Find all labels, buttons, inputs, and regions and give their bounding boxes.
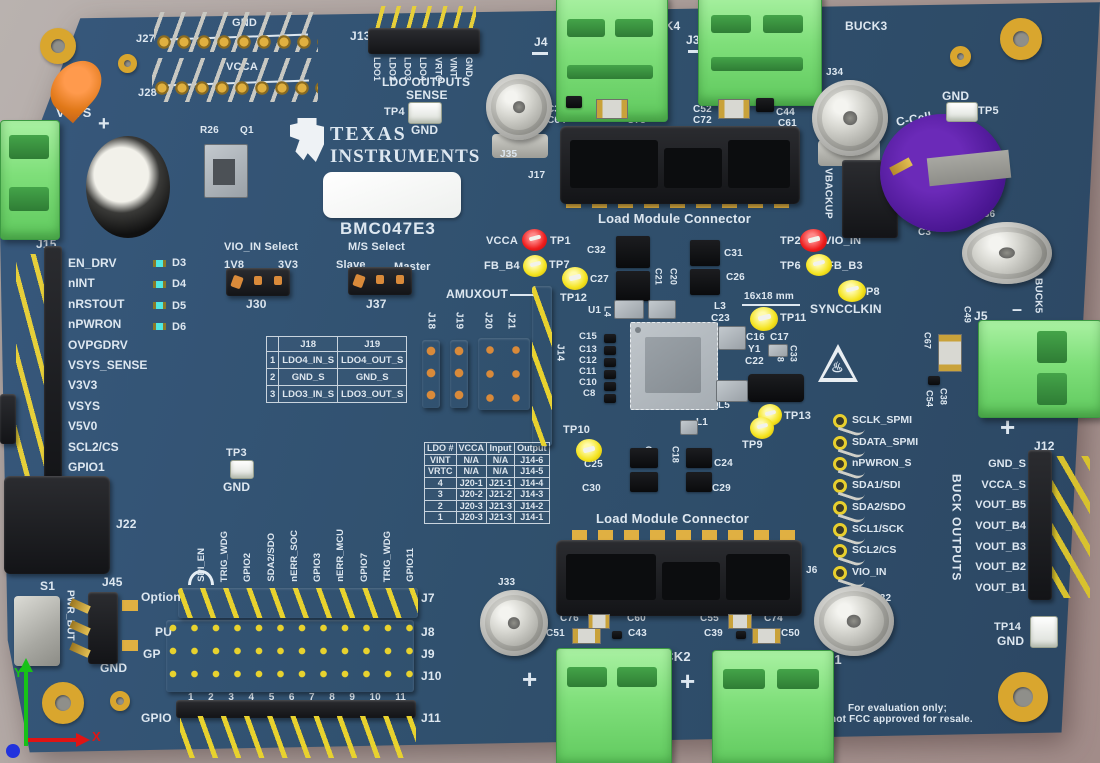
label-sticker (323, 172, 461, 218)
buck2-terminal (556, 648, 672, 763)
mounting-hole (40, 28, 76, 64)
vsys-terminal (0, 120, 60, 240)
cap-small (928, 376, 940, 385)
j13-header (368, 28, 480, 54)
j12-net-label: VOUT_B4 (975, 520, 1026, 532)
l3-designator: L3 (714, 302, 726, 313)
table-cell: 1 (267, 352, 279, 369)
mounting-hole (950, 46, 971, 67)
table-cell: 4 (425, 477, 457, 489)
table-row: 3LDO3_IN_SLDO3_OUT_S (267, 386, 407, 403)
j12-net-label: VOUT_B1 (975, 582, 1026, 594)
c10-designator: C10 (579, 378, 597, 388)
tp9-testpoint (750, 417, 774, 439)
table-cell: LDO3_OUT_S (338, 386, 407, 403)
j6-designator: J6 (806, 566, 818, 577)
gpio-net-label: nERR_SOC (289, 530, 300, 582)
tp14-designator: TP14 (994, 622, 1021, 634)
j9-designator: J9 (421, 648, 435, 661)
j15-header (44, 246, 62, 486)
c27-designator: C27 (590, 275, 609, 286)
tp14-net: GND (997, 635, 1024, 648)
u1-designator: U1 (588, 306, 601, 317)
cap-small (612, 631, 622, 639)
l4-designator: L4 (602, 306, 611, 317)
edge-connector (0, 394, 16, 444)
j45-pad (122, 640, 138, 651)
j15-labels: EN_DRVnINTnRSTOUTnPWRONOVPGDRVVSYS_SENSE… (68, 256, 147, 474)
tp10-designator: TP10 (563, 425, 590, 437)
table-cell: 1 (425, 512, 457, 524)
table-cell: J20-3 (456, 500, 487, 512)
j36-coax (962, 222, 1052, 284)
j12-pins (1050, 456, 1090, 598)
j37-designator: J37 (366, 298, 387, 311)
y-axis-arrow (24, 670, 28, 746)
j18-header (422, 340, 440, 408)
cap-small (736, 631, 746, 639)
table-row: 2GND_SGND_S (267, 369, 407, 386)
j15-net-label: V3V3 (68, 378, 147, 392)
y1-crystal (768, 344, 788, 357)
hot-surface-warning: ♨ (818, 344, 858, 382)
c24-designator: C24 (714, 459, 733, 470)
table-row: 2J20-3J21-3J14-2 (425, 500, 550, 512)
tp1-designator: TP1 (550, 236, 571, 248)
tp2-testpoint (800, 229, 827, 252)
c8-designator: C8 (583, 389, 596, 399)
j8-j10-header-block (166, 620, 414, 692)
eval-note-line2: not FCC approved for resale. (830, 715, 973, 726)
cap-block (690, 269, 720, 295)
hot-surface-icon: ♨ (831, 360, 844, 375)
tp4-designator: TP4 (384, 107, 405, 119)
z-axis-origin (6, 744, 20, 758)
bulk-capacitor (86, 136, 170, 238)
j15-net-label: V5V0 (68, 419, 147, 433)
amuxout-label: AMUXOUT (446, 288, 508, 301)
j22-module (4, 476, 110, 574)
c22-designator: C22 (745, 357, 764, 368)
j45-pad (122, 600, 138, 611)
gpio-header-labels: SPI_ENTRIG_WDGGPIO2SDA2/SDOnERR_SOCGPIO3… (196, 498, 416, 582)
buck3-label: BUCK3 (845, 20, 887, 33)
j12-net-label: VOUT_B3 (975, 541, 1026, 553)
mounting-hole (998, 672, 1048, 722)
cap-small (604, 346, 616, 355)
vio-select-label: VIO_IN Select (224, 242, 298, 254)
spmi-testpoint: SDA1/SDI (833, 479, 918, 491)
table-header: J19 (338, 337, 407, 352)
tp7-testpoint (523, 255, 547, 277)
cap-block (630, 448, 658, 468)
table-header: LDO # (425, 443, 457, 455)
load-module-label-top: Load Module Connector (598, 212, 751, 226)
gp-label: GP (143, 648, 161, 661)
j21-designator: J21 (505, 312, 516, 329)
buck1-terminal (712, 650, 834, 763)
j8-designator: J8 (421, 626, 435, 639)
j20-designator: J20 (482, 312, 493, 329)
c17-designator: C17 (770, 333, 789, 344)
tp3-testpoint (230, 460, 254, 479)
axis-gizmo: Y X (0, 640, 110, 763)
gpio-net-label: SPI_EN (196, 548, 207, 582)
cap-block (690, 240, 720, 266)
c20-designator: C20 (668, 268, 677, 285)
j28-header (152, 58, 318, 102)
ldo-routing-table: LDO #VCCAInputOutputVINTN/AN/AJ14-6VRTCN… (424, 442, 550, 524)
c49-designator: C49 (962, 306, 971, 323)
l1-inductor (680, 420, 698, 435)
cap-small (604, 370, 616, 379)
j14-designator: J14 (554, 344, 565, 361)
led-label: D5 (153, 300, 186, 312)
table-header (267, 337, 279, 352)
c15-designator: C15 (579, 332, 597, 342)
j15-net-label: nINT (68, 276, 147, 290)
gpio-net-label: GPIO3 (312, 553, 323, 582)
table-cell: J14-6 (515, 454, 550, 466)
spmi-testpoint: SCLK_SPMI (833, 414, 918, 426)
table-cell: VINT (425, 454, 457, 466)
c50-designator: C50 (781, 629, 800, 640)
vsys-plus-mark: + (98, 114, 110, 135)
cap-small (604, 334, 616, 343)
j18-designator: J18 (425, 312, 436, 329)
table-row: 3J20-2J21-2J14-3 (425, 489, 550, 501)
tp2-designator: TP2 (780, 236, 801, 248)
y-axis-label: Y (14, 666, 23, 680)
table-header: J18 (279, 337, 338, 352)
j7-designator: J7 (421, 592, 435, 605)
c31-designator: C31 (724, 249, 743, 260)
table-cell: J21-3 (487, 512, 515, 524)
r26-designator: R26 (200, 126, 219, 137)
spmi-testpoint: SDATA_SPMI (833, 436, 918, 448)
c32-designator: C32 (587, 246, 606, 257)
s1-designator: S1 (40, 580, 55, 593)
j11-pins (180, 716, 416, 758)
c43-designator: C43 (628, 629, 647, 640)
cap (572, 628, 601, 644)
led-label: D6 (153, 321, 186, 333)
tp1-net: VCCA (486, 236, 518, 248)
cap-small (604, 358, 616, 367)
y1-designator: Y1 (748, 345, 761, 356)
cap-block (616, 236, 650, 268)
j10-designator: J10 (421, 670, 442, 683)
j27-designator: J27 (136, 34, 155, 46)
table-cell: LDO3_IN_S (279, 386, 338, 403)
c30-designator: C30 (582, 484, 601, 495)
gpio-net-label: GPIO7 (359, 553, 370, 582)
cap (588, 614, 610, 629)
c26-designator: C26 (726, 273, 745, 284)
c29-designator: C29 (712, 484, 731, 495)
table-cell: J21-3 (487, 500, 515, 512)
tp1-testpoint (522, 229, 547, 251)
j15-net-label: SCL2/CS (68, 440, 147, 454)
tp7-net: FB_B4 (484, 261, 520, 273)
table-cell: N/A (487, 454, 515, 466)
j33-coax (480, 590, 548, 656)
tp9-designator: TP9 (742, 440, 763, 452)
j15-net-label: nRSTOUT (68, 297, 147, 311)
c38-designator: C38 (938, 388, 947, 405)
j5-plus-mark: + (1000, 414, 1015, 441)
cap-small (604, 382, 616, 391)
l3-inductor (718, 326, 746, 350)
j32-coax (814, 586, 894, 656)
c22-cap (748, 374, 804, 402)
table-cell: 2 (267, 369, 279, 386)
j15-pins (16, 254, 46, 482)
table-row: 1J20-3J21-3J14-1 (425, 512, 550, 524)
table-row: 4J20-1J21-1J14-4 (425, 477, 550, 489)
table-cell: GND_S (338, 369, 407, 386)
tp12-designator: TP12 (560, 293, 587, 305)
c52-cap (718, 99, 750, 119)
j11-designator: J11 (421, 712, 441, 725)
led-rows: D3D4D5D6 (153, 257, 186, 333)
u1-chip (630, 322, 718, 410)
j45-designator: J45 (102, 576, 123, 589)
brand-line1: TEXAS (330, 124, 407, 145)
buck-outputs-label: BUCK OUTPUTS (950, 474, 963, 581)
table-cell: J20-2 (456, 489, 487, 501)
j37-jumper (348, 267, 412, 295)
mounting-hole (1000, 18, 1042, 60)
spmi-testpoint-list: SCLK_SPMISDATA_SPMInPWRON_SSDA1/SDISDA2/… (833, 414, 918, 578)
mounting-hole (110, 691, 130, 711)
cap-block (686, 472, 712, 492)
pcb-render: J27 GND J28 VCCA VSYS + R26 Q1 ti TEXAS … (0, 0, 1100, 763)
vbackup-label: VBACKUP (822, 168, 833, 219)
c39-designator: C39 (704, 629, 723, 640)
c72-designator: C72 (693, 116, 712, 127)
c49-cap (938, 334, 962, 372)
load-module-connector-top (560, 126, 800, 204)
buck1-plus-mark: + (680, 668, 695, 695)
j12-net-label: VOUT_B2 (975, 561, 1026, 573)
table-cell: J14-2 (515, 500, 550, 512)
tp14-testpoint (1030, 616, 1058, 648)
table-cell: J14-4 (515, 477, 550, 489)
table-cell: N/A (456, 466, 487, 478)
cap (752, 628, 781, 644)
cap-block (630, 472, 658, 492)
p8-designator: P8 (866, 287, 880, 299)
buck3-terminal (698, 0, 822, 106)
tp3-net: GND (223, 481, 250, 494)
j5-minus-mark: – (1012, 300, 1022, 319)
table-header: VCCA (456, 443, 487, 455)
c12-designator: C12 (579, 356, 597, 366)
table-row: VRTCN/AN/AJ14-5 (425, 466, 550, 478)
tp11-designator: TP11 (780, 313, 807, 325)
table-cell: GND_S (279, 369, 338, 386)
syncclkin-label: SYNCCLKIN (810, 303, 882, 316)
j4-designator: J4 (534, 36, 548, 49)
ldo-sense-table: J18J191LDO4_IN_SLDO4_OUT_S2GND_SGND_S3LD… (266, 336, 407, 403)
c37-cap (566, 96, 582, 108)
j15-net-label: EN_DRV (68, 256, 147, 270)
c11-designator: C11 (579, 367, 597, 377)
j5-terminal (978, 320, 1100, 418)
table-cell: N/A (456, 454, 487, 466)
j15-net-label: nPWRON (68, 317, 147, 331)
table-cell: VRTC (425, 466, 457, 478)
j12-header (1028, 450, 1052, 600)
j35-designator: J35 (500, 150, 517, 161)
l5-inductor (716, 380, 748, 402)
table-cell: 3 (267, 386, 279, 403)
table-cell: 3 (425, 489, 457, 501)
dim-underline (742, 304, 800, 306)
table-cell: J14-3 (515, 489, 550, 501)
c44-designator: C44 (776, 108, 795, 119)
led-label: D4 (153, 278, 186, 290)
c54-designator: C54 (924, 390, 933, 407)
table-cell: J14-5 (515, 466, 550, 478)
table-cell: LDO4_IN_S (279, 352, 338, 369)
c33-designator: C33 (788, 345, 797, 362)
ldo-sense-label: SENSE (406, 89, 448, 102)
cap-block (616, 271, 650, 301)
j27-header (154, 12, 318, 52)
tp5-net: GND (942, 90, 969, 103)
buck2-plus-mark: + (522, 666, 537, 693)
x-axis-arrow (28, 738, 78, 742)
j13-pins (372, 6, 476, 30)
table-cell: J21-1 (487, 477, 515, 489)
part-number: BMC047E3 (340, 220, 436, 238)
tp6-net: FB_B3 (827, 261, 863, 273)
tp4-net: GND (411, 124, 438, 137)
j30-designator: J30 (246, 298, 267, 311)
c13-designator: C13 (579, 345, 597, 355)
j4-tick (532, 52, 548, 55)
table-cell: J20-1 (456, 477, 487, 489)
spmi-testpoint: nPWRON_S (833, 457, 918, 469)
table-row: VINTN/AN/AJ14-6 (425, 454, 550, 466)
spmi-testpoint: SCL1/SCK (833, 523, 918, 535)
gpio-net-label: TRIG_WDG (382, 531, 393, 582)
j15-net-label: VSYS_SENSE (68, 358, 147, 372)
buck5-label: BUCK5 (1032, 278, 1043, 313)
x-axis-arrowhead (76, 733, 90, 747)
option-label: Option (141, 591, 181, 604)
table-row: 1LDO4_IN_SLDO4_OUT_S (267, 352, 407, 369)
table-cell: J21-2 (487, 489, 515, 501)
gpio-net-label: TRIG_WDG (219, 531, 230, 582)
tp12-testpoint (562, 267, 588, 290)
c51-designator: C51 (546, 629, 565, 640)
gpio-label: GPIO (141, 712, 172, 725)
tp3-designator: TP3 (226, 448, 247, 460)
j15-net-label: GPIO1 (68, 460, 147, 474)
x-axis-label: X (92, 730, 101, 744)
c44-cap (756, 98, 774, 112)
led-label: D3 (153, 257, 186, 269)
cap-block (686, 448, 712, 468)
tp4-testpoint (408, 102, 442, 124)
brand-line2: INSTRUMENTS (330, 146, 480, 168)
j20-j21-jumpers (478, 338, 530, 410)
j15-net-label: VSYS (68, 399, 147, 413)
table-cell: J20-3 (456, 512, 487, 524)
ms-select-label: M/S Select (348, 242, 405, 254)
j12-net-label: GND_S (988, 458, 1026, 470)
tp5-designator: TP5 (978, 106, 999, 118)
j19-header (450, 340, 468, 408)
c18-designator: C18 (670, 446, 679, 463)
table-cell: LDO4_OUT_S (338, 352, 407, 369)
gpio-net-label: GPIO2 (242, 553, 253, 582)
j15-net-label: OVPGDRV (68, 338, 147, 352)
spmi-testpoint: SCL2/CS (833, 544, 918, 556)
cap (728, 614, 752, 629)
gpio-net-label: SDA2/SDO (266, 533, 277, 582)
c53-cap (596, 99, 628, 119)
load-module-connector-bottom (556, 540, 802, 616)
table-cell: J14-1 (515, 512, 550, 524)
j30-jumper (226, 268, 290, 296)
tp13-designator: TP13 (784, 411, 811, 423)
j33-designator: J33 (498, 578, 515, 589)
c16-designator: C16 (746, 333, 765, 344)
table-cell: N/A (487, 466, 515, 478)
tp10-testpoint (576, 439, 602, 462)
dim-label: 16x18 mm (744, 292, 794, 303)
tp6-designator: TP6 (780, 261, 801, 273)
q1-designator: Q1 (240, 126, 254, 137)
table-cell: 2 (425, 500, 457, 512)
l4-inductor (614, 300, 644, 319)
spmi-testpoint: VIO_IN (833, 566, 918, 578)
gpio-net-label: GPIO11 (405, 548, 416, 582)
j34-designator: J34 (826, 68, 843, 79)
j7-header (178, 588, 418, 618)
c21-designator: C21 (653, 268, 662, 285)
j19-designator: J19 (453, 312, 464, 329)
j12-net-label: VOUT_B5 (975, 499, 1026, 511)
j12-net-label: VCCA_S (981, 479, 1026, 491)
j13-pin-label: LDO1 (372, 57, 382, 82)
amuxout-line (510, 294, 534, 296)
q1-transistor (204, 144, 248, 198)
c67-designator: C67 (922, 332, 931, 349)
l5-designator: L5 (718, 401, 730, 412)
tp5-testpoint (946, 102, 978, 122)
p8-testpoint (838, 280, 866, 302)
j34-coax (812, 80, 888, 156)
j14-header (532, 286, 552, 446)
j17-designator: J17 (528, 171, 545, 182)
table-header: Input (487, 443, 515, 455)
tp6-testpoint (806, 254, 832, 276)
cap-small (604, 394, 616, 403)
spmi-testpoint: SDA2/SDO (833, 501, 918, 513)
j35-coax (486, 74, 552, 140)
c52-designator: C52 (693, 105, 712, 116)
mounting-hole (118, 54, 137, 73)
passive (648, 300, 676, 319)
gpio-net-label: nERR_MCU (335, 529, 346, 582)
ldo-outputs-label: LDO OUTPUTS (382, 76, 470, 89)
load-module-label-bottom: Load Module Connector (596, 512, 749, 526)
